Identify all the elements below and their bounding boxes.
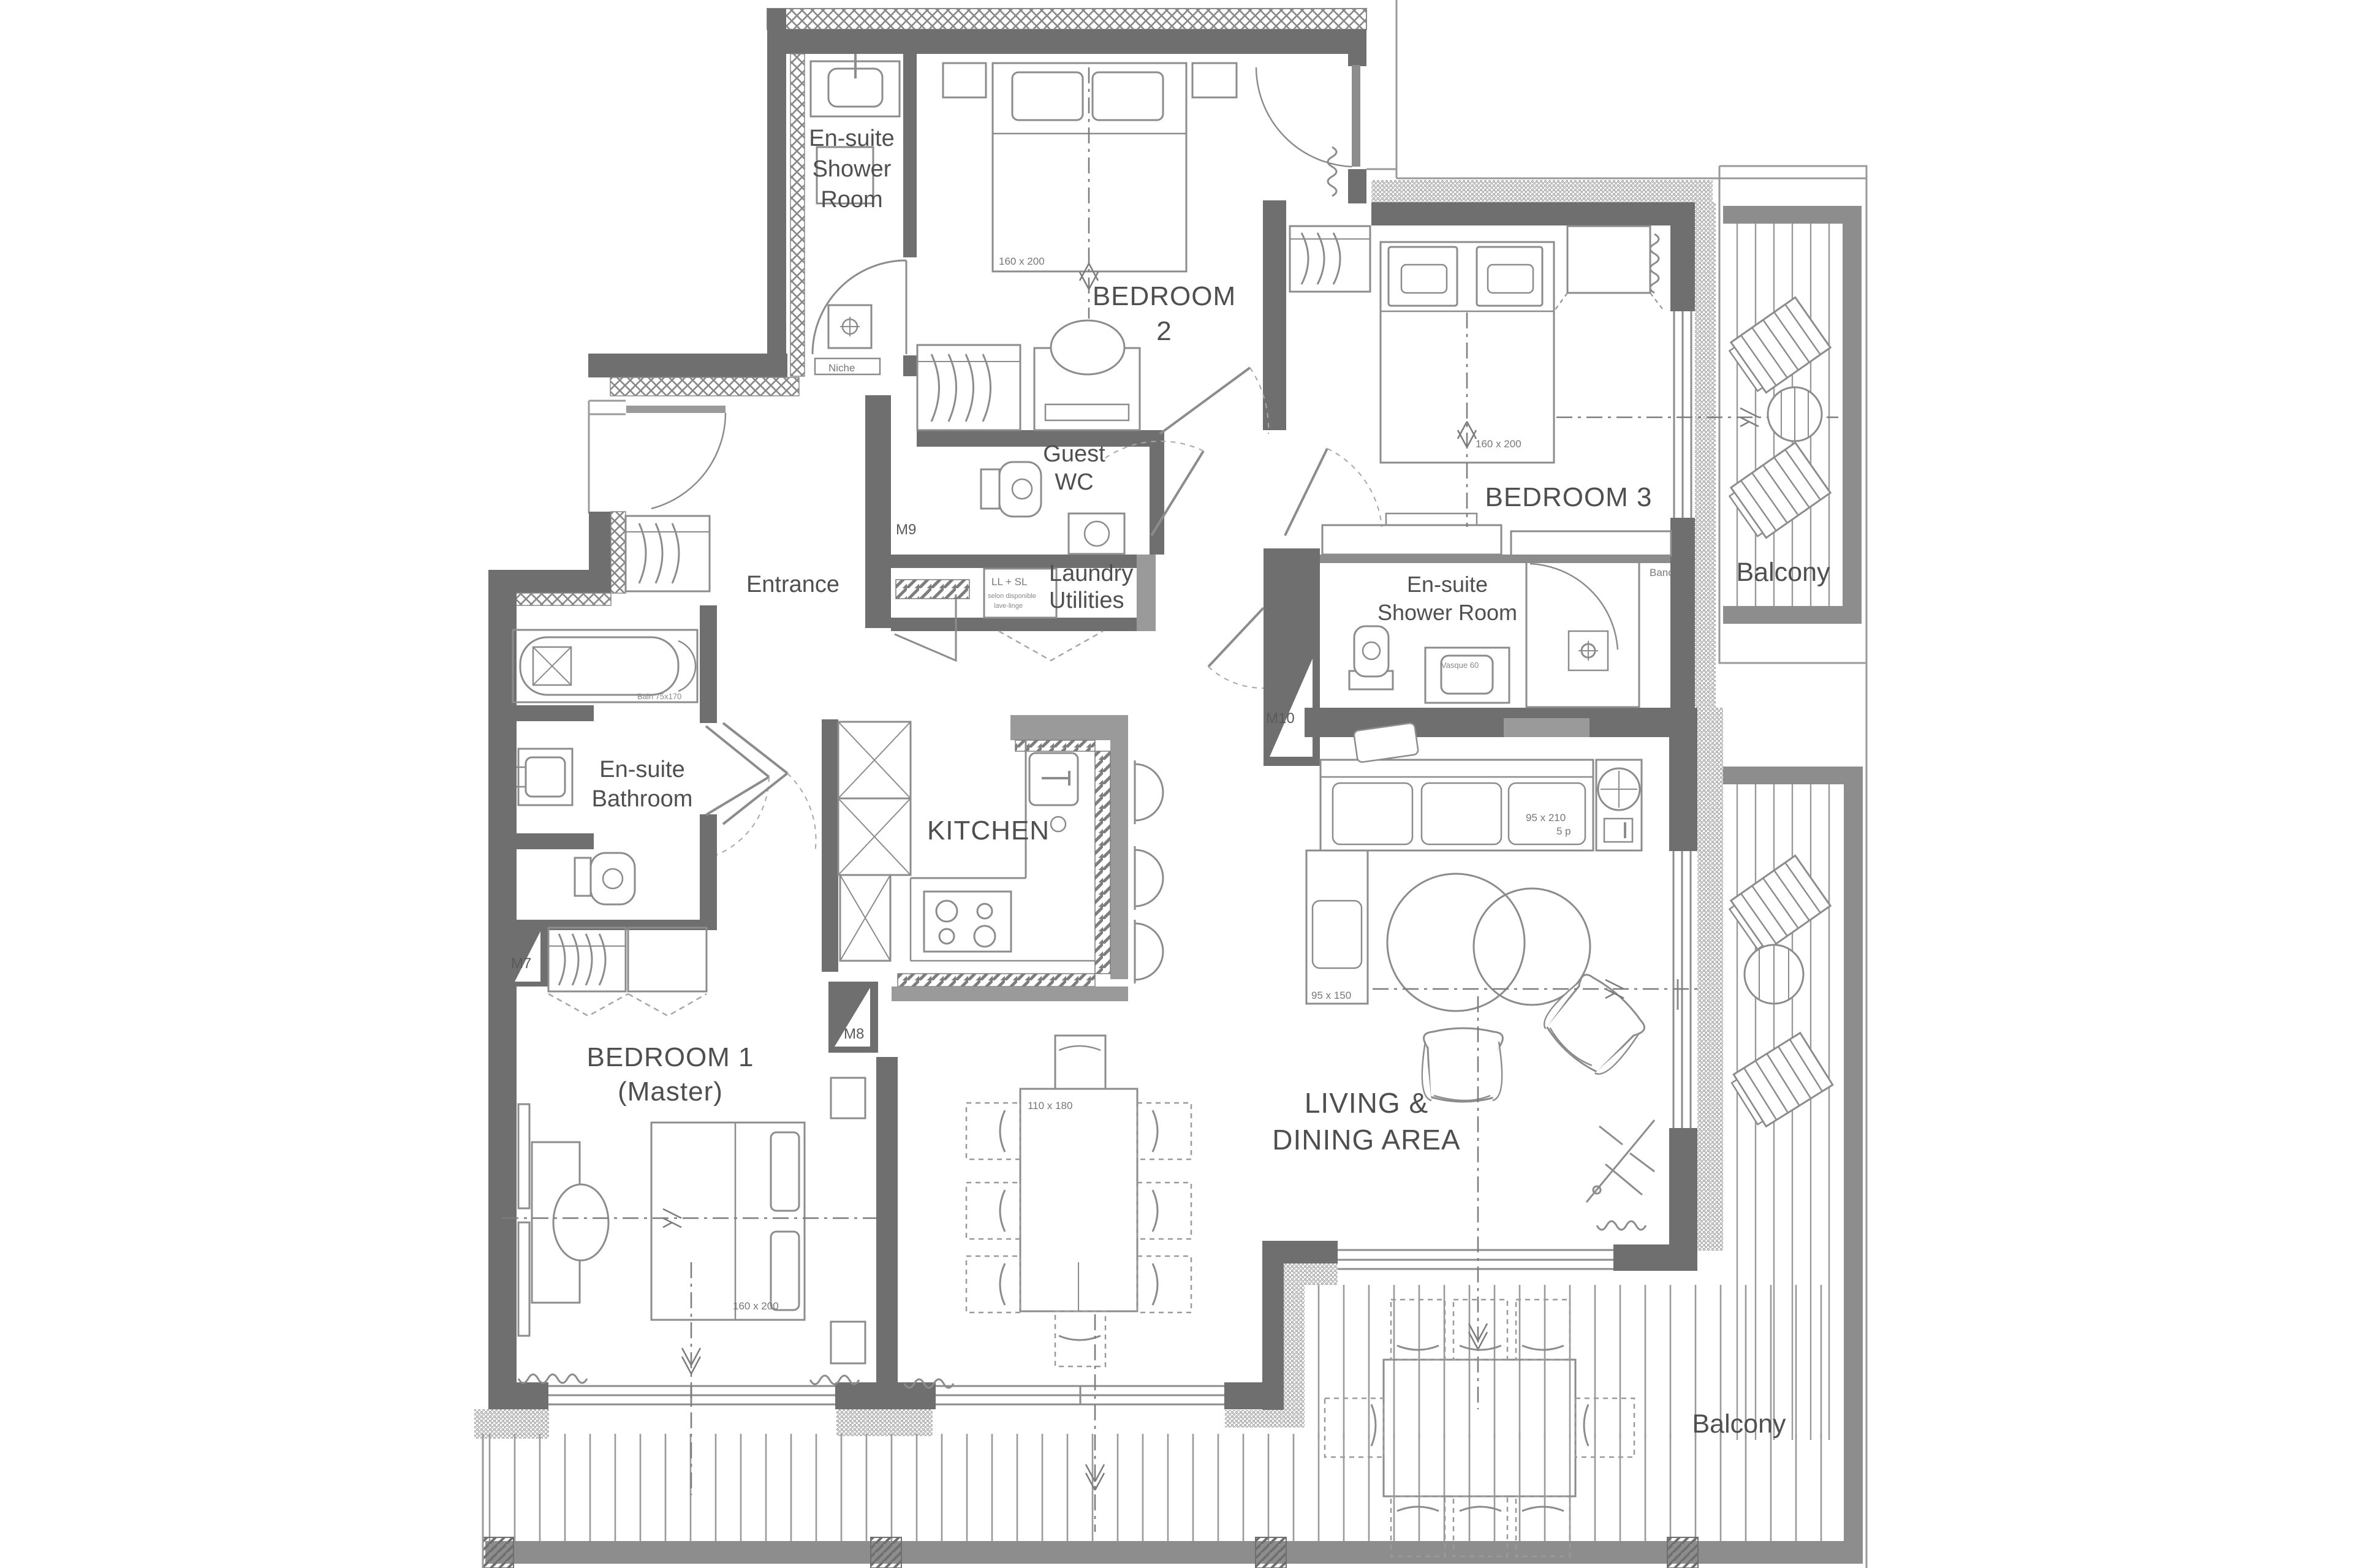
svg-text:BEDROOM 3: BEDROOM 3 <box>1485 482 1652 512</box>
svg-text:110 x 180: 110 x 180 <box>1028 1100 1072 1112</box>
svg-text:Shower Room: Shower Room <box>1377 600 1517 625</box>
svg-text:M8: M8 <box>844 1026 864 1042</box>
svg-text:Vasque 60: Vasque 60 <box>1441 661 1479 670</box>
svg-text:Banc: Banc <box>1650 567 1673 578</box>
svg-text:LL + SL: LL + SL <box>991 576 1027 588</box>
svg-text:160 x 200: 160 x 200 <box>999 256 1045 267</box>
svg-text:DINING AREA: DINING AREA <box>1272 1124 1461 1156</box>
svg-text:selon disponible: selon disponible <box>988 593 1036 600</box>
svg-text:5 p: 5 p <box>1556 825 1571 837</box>
svg-text:Bathroom: Bathroom <box>592 786 693 812</box>
svg-text:(Master): (Master) <box>618 1077 723 1107</box>
svg-text:Entrance: Entrance <box>746 572 839 597</box>
svg-text:KITCHEN: KITCHEN <box>927 816 1050 846</box>
svg-text:WC: WC <box>1055 469 1093 495</box>
svg-text:BEDROOM: BEDROOM <box>1093 281 1236 311</box>
svg-text:Room: Room <box>820 187 882 213</box>
svg-text:160 x 200: 160 x 200 <box>1476 438 1521 450</box>
svg-text:Laundry: Laundry <box>1049 561 1133 586</box>
svg-text:95 x 150: 95 x 150 <box>1311 990 1351 1001</box>
svg-text:lave-linge: lave-linge <box>994 602 1023 610</box>
svg-text:Utilities: Utilities <box>1049 588 1124 613</box>
svg-text:Guest: Guest <box>1043 441 1105 467</box>
svg-text:En-suite: En-suite <box>1407 572 1488 597</box>
svg-text:Shower: Shower <box>813 156 892 182</box>
svg-text:M9: M9 <box>896 521 916 538</box>
svg-text:160 x 200: 160 x 200 <box>733 1300 779 1312</box>
svg-text:Balcony: Balcony <box>1737 558 1830 587</box>
svg-text:M10: M10 <box>1266 710 1295 727</box>
svg-text:BEDROOM 1: BEDROOM 1 <box>586 1042 754 1072</box>
svg-text:Balcony: Balcony <box>1692 1409 1786 1439</box>
svg-text:LIVING &: LIVING & <box>1305 1087 1428 1119</box>
svg-text:M7: M7 <box>511 955 531 972</box>
svg-text:En-suite: En-suite <box>599 757 684 782</box>
svg-text:Bain 75x170: Bain 75x170 <box>637 692 681 701</box>
svg-text:Niche: Niche <box>828 362 855 374</box>
svg-text:95 x 210: 95 x 210 <box>1526 812 1566 824</box>
svg-text:2: 2 <box>1156 316 1172 346</box>
svg-text:En-suite: En-suite <box>809 126 894 151</box>
